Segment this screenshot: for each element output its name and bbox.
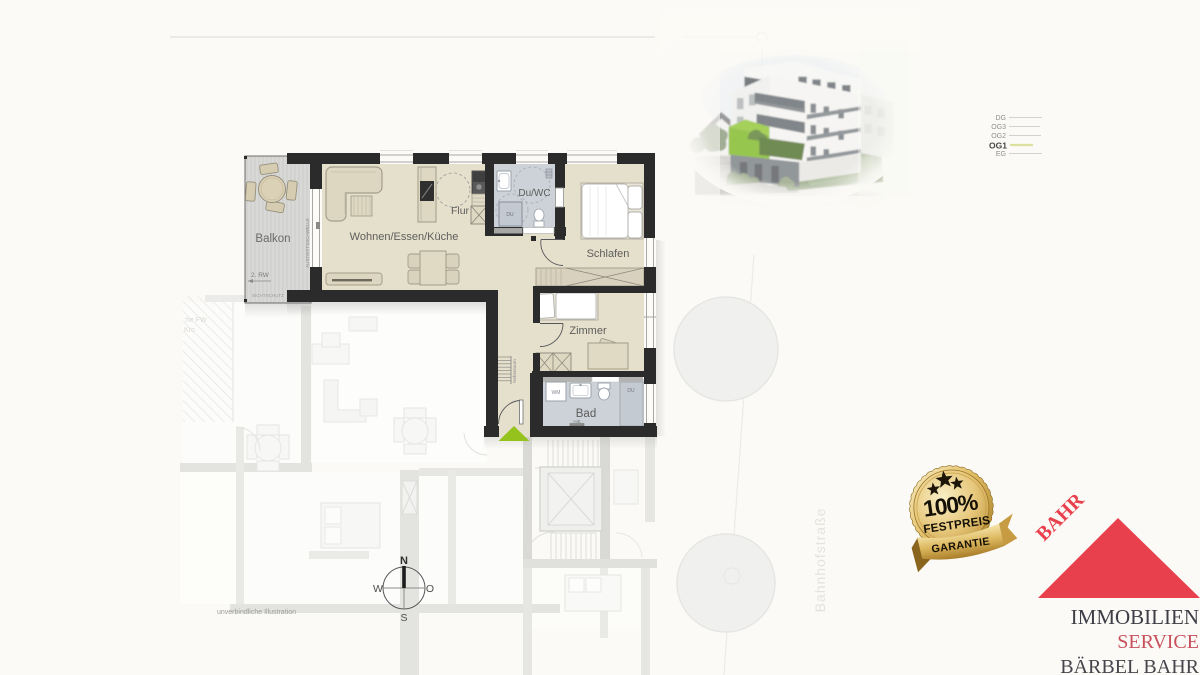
svg-text:Zimmer: Zimmer (569, 325, 607, 337)
svg-text:Du/WC: Du/WC (518, 188, 550, 199)
svg-text:Balkon: Balkon (255, 233, 290, 245)
svg-text:OG1: OG1 (989, 141, 1007, 151)
svg-text:W: W (373, 583, 383, 595)
svg-text:Wohnen/Essen/Küche: Wohnen/Essen/Küche (350, 231, 459, 243)
svg-text:BÄRBEL BAHR: BÄRBEL BAHR (1060, 655, 1199, 675)
svg-text:Schlafen: Schlafen (587, 248, 630, 260)
svg-text:SICHTSCHUTZ: SICHTSCHUTZ (252, 293, 284, 298)
svg-text::he FW: :he FW (184, 317, 207, 324)
svg-text:DU: DU (627, 388, 635, 394)
svg-text:SERVICE: SERVICE (1117, 631, 1199, 653)
svg-text:DU: DU (506, 212, 514, 218)
svg-text:OG2: OG2 (991, 133, 1006, 140)
svg-text:2. RW: 2. RW (251, 272, 270, 279)
svg-text:EG: EG (996, 151, 1006, 158)
svg-text:unverbindliche Illustration: unverbindliche Illustration (217, 609, 296, 616)
svg-text:Treppe 18 Stg: Treppe 18 Stg (524, 489, 530, 521)
svg-text:AUSTRITTSSCHWELLE: AUSTRITTSSCHWELLE (305, 218, 310, 268)
svg-text:OG3: OG3 (991, 124, 1006, 131)
svg-text:Kro: Kro (184, 327, 195, 334)
svg-text:WM: WM (552, 390, 561, 396)
svg-text:DG: DG (996, 115, 1007, 122)
svg-text:Flur: Flur (451, 205, 470, 217)
svg-text:O: O (426, 583, 434, 595)
svg-text:Bahnhofstraße: Bahnhofstraße (812, 508, 828, 613)
svg-text:N: N (400, 555, 408, 567)
svg-text:S: S (400, 612, 407, 624)
svg-text:IMMOBILIEN: IMMOBILIEN (1071, 605, 1199, 629)
svg-text:Nebenraum: Nebenraum (512, 359, 517, 383)
